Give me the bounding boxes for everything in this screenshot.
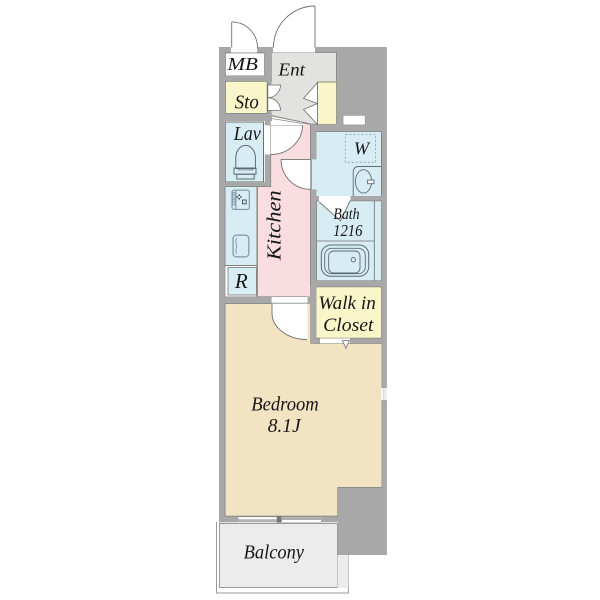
svg-text:R: R: [234, 269, 248, 293]
svg-text:Sto: Sto: [235, 91, 259, 113]
svg-text:Lav: Lav: [233, 123, 261, 145]
svg-text:MB: MB: [226, 54, 258, 74]
svg-text:1216: 1216: [333, 221, 363, 240]
svg-text:Kitchen: Kitchen: [263, 190, 285, 261]
svg-text:Closet: Closet: [323, 315, 374, 336]
svg-text:Balcony: Balcony: [244, 542, 305, 564]
svg-text:Walk in: Walk in: [318, 293, 375, 314]
svg-text:8.1J: 8.1J: [268, 415, 302, 437]
svg-text:W: W: [354, 138, 371, 158]
svg-text:Bedroom: Bedroom: [251, 393, 319, 415]
svg-text:Ent: Ent: [277, 59, 306, 79]
